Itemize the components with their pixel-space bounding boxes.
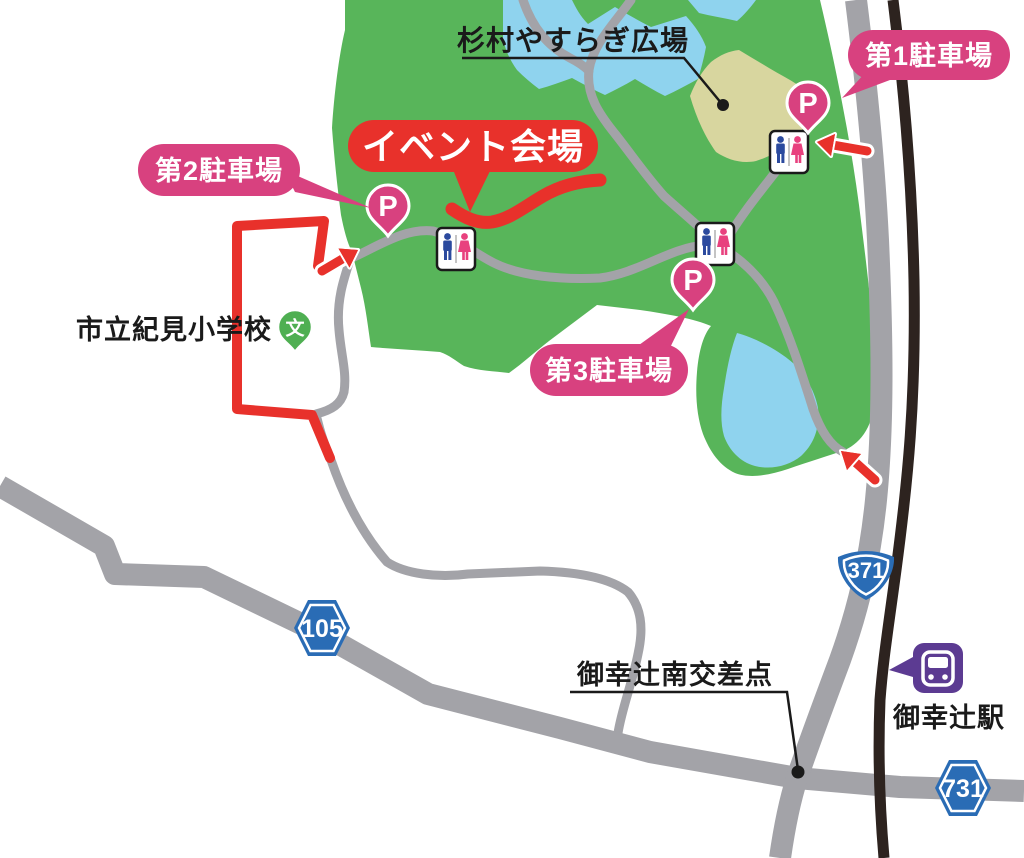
intersection-label: 御幸辻南交差点	[576, 659, 773, 690]
access-map: P P P 文 105 731 371 イベン	[0, 0, 1024, 858]
station-icon	[889, 643, 963, 693]
parking-pin-letter: P	[378, 191, 397, 223]
parking1-bubble: 第1駐車場	[842, 30, 1010, 98]
school-label: 市立紀見小学校	[76, 314, 272, 345]
entrance-arrow-icon	[322, 249, 358, 272]
parking-pin-letter: P	[798, 88, 817, 120]
intersection-dot	[792, 766, 805, 779]
parking-pin-letter: P	[683, 265, 702, 297]
route-badge-371-number: 371	[848, 558, 885, 583]
route-badge-105-number: 105	[301, 615, 343, 643]
toilet-icon-1	[770, 131, 808, 173]
school-pin-icon: 文	[278, 310, 312, 352]
parking1-label: 第1駐車場	[865, 40, 993, 71]
event-venue-label: イベント会場	[362, 126, 584, 167]
toilet-icon-3	[437, 228, 475, 270]
school-pin-char: 文	[285, 317, 305, 340]
route-badge-731: 731	[935, 760, 991, 816]
plaza-label: 杉村やすらぎ広場	[457, 25, 689, 56]
route-badge-371: 371	[838, 551, 894, 600]
route-badge-731-number: 731	[942, 775, 984, 803]
parking3-label: 第3駐車場	[545, 355, 673, 386]
plaza-dot	[717, 99, 729, 111]
station-label: 御幸辻駅	[892, 703, 1005, 733]
parking2-label: 第2駐車場	[155, 155, 283, 186]
toilet-icon-2	[696, 223, 734, 265]
